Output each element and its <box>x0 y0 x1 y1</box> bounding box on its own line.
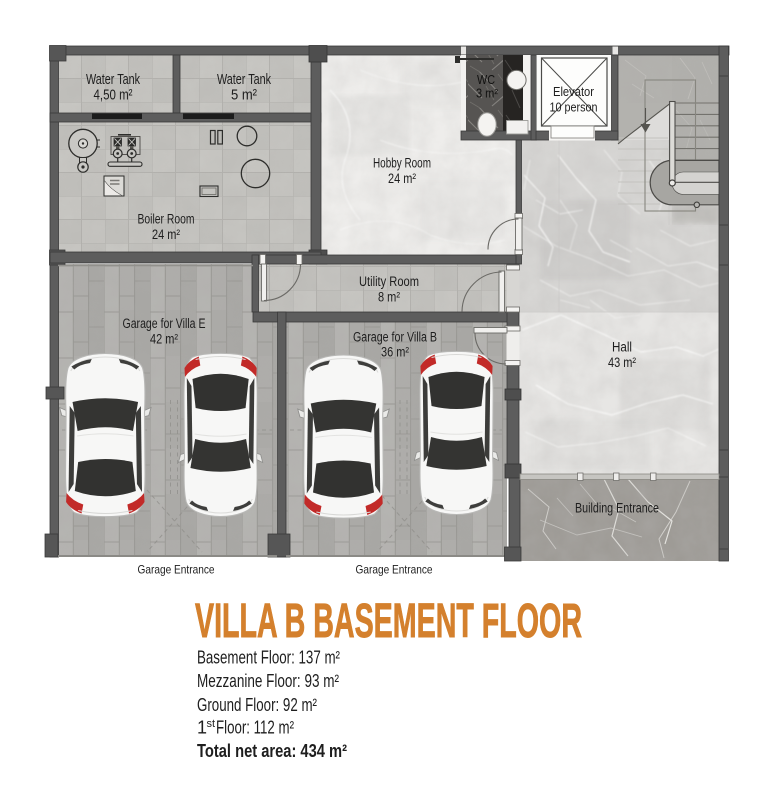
svg-text:Elevator: Elevator <box>553 84 595 99</box>
svg-text:Boiler Room: Boiler Room <box>138 212 195 227</box>
svg-text:Mezzanine Floor: 93 m²: Mezzanine Floor: 93 m² <box>197 671 339 691</box>
svg-text:Garage Entrance: Garage Entrance <box>356 563 433 577</box>
svg-text:4,50 m²: 4,50 m² <box>94 87 133 104</box>
svg-text:42 m²: 42 m² <box>150 332 178 347</box>
svg-text:10 person: 10 person <box>550 100 598 115</box>
svg-text:Building Entrance: Building Entrance <box>575 501 659 516</box>
svg-text:Floor: 112 m²: Floor: 112 m² <box>216 718 294 738</box>
svg-text:VILLA B BASEMENT FLOOR: VILLA B BASEMENT FLOOR <box>195 595 582 648</box>
svg-text:1: 1 <box>197 718 207 738</box>
svg-text:Utility Room: Utility Room <box>359 274 419 289</box>
svg-text:Hall: Hall <box>612 340 632 355</box>
svg-text:Garage for Villa E: Garage for Villa E <box>123 316 206 331</box>
svg-text:24 m²: 24 m² <box>388 171 416 186</box>
svg-text:43 m²: 43 m² <box>608 355 636 370</box>
svg-text:3 m²: 3 m² <box>476 87 498 101</box>
svg-text:Garage for Villa B: Garage for Villa B <box>353 330 437 345</box>
svg-text:24 m²: 24 m² <box>152 227 180 242</box>
svg-text:WC: WC <box>477 73 495 87</box>
svg-text:st: st <box>207 718 216 730</box>
svg-text:5 m²: 5 m² <box>231 87 257 104</box>
svg-text:8 m²: 8 m² <box>378 290 400 305</box>
svg-text:Garage Entrance: Garage Entrance <box>138 563 215 577</box>
svg-text:36 m²: 36 m² <box>381 345 409 360</box>
svg-text:Ground Floor: 92 m²: Ground Floor: 92 m² <box>197 695 317 715</box>
svg-text:Hobby Room: Hobby Room <box>373 156 431 171</box>
svg-text:Water Tank: Water Tank <box>217 71 271 88</box>
svg-text:Total net area: 434 m²: Total net area: 434 m² <box>197 741 347 761</box>
svg-text:Basement Floor: 137 m²: Basement Floor: 137 m² <box>197 648 340 668</box>
svg-text:Water Tank: Water Tank <box>86 71 140 88</box>
